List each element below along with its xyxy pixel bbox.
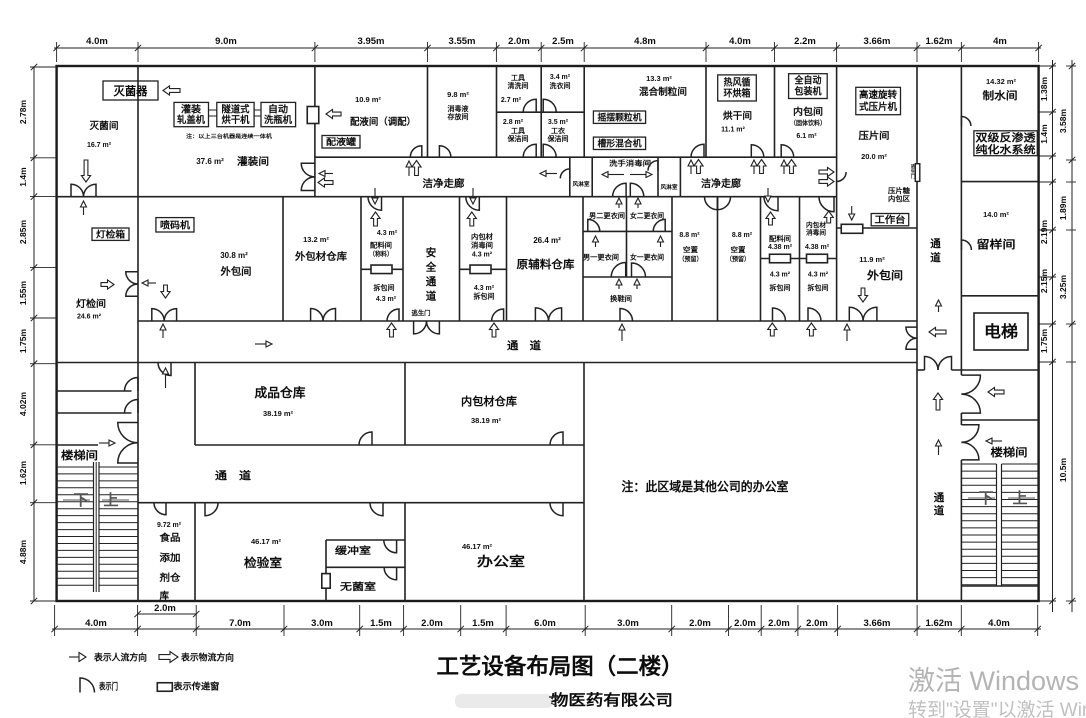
svg-text:9.8 m²: 9.8 m² xyxy=(447,90,469,99)
svg-text:3.25m: 3.25m xyxy=(1058,275,1068,300)
svg-text:包装机: 包装机 xyxy=(794,86,822,98)
svg-text:库: 库 xyxy=(159,590,170,602)
svg-text:全: 全 xyxy=(425,261,437,274)
svg-text:（预留）: （预留） xyxy=(679,254,703,263)
svg-text:3.55m: 3.55m xyxy=(449,36,476,47)
svg-text:2.5m: 2.5m xyxy=(552,36,574,47)
svg-text:热风循: 热风循 xyxy=(724,77,751,89)
svg-text:46.17 m²: 46.17 m² xyxy=(462,542,493,551)
svg-text:制水间: 制水间 xyxy=(983,89,1018,102)
svg-text:1.5m: 1.5m xyxy=(370,618,392,629)
svg-text:9.72 m²: 9.72 m² xyxy=(157,522,182,529)
svg-text:男一更衣间: 男一更衣间 xyxy=(583,253,619,262)
svg-text:洗衣间: 洗衣间 xyxy=(550,81,571,90)
svg-text:留样间: 留样间 xyxy=(977,237,1016,251)
svg-text:4.0m: 4.0m xyxy=(86,36,108,47)
svg-text:轧盖机: 轧盖机 xyxy=(177,114,205,126)
svg-text:无菌室: 无菌室 xyxy=(339,581,377,593)
svg-text:11.9 m²: 11.9 m² xyxy=(859,255,885,264)
svg-text:3.66m: 3.66m xyxy=(864,36,891,47)
svg-text:4.3 m²: 4.3 m² xyxy=(472,252,493,259)
svg-text:灯检间: 灯检间 xyxy=(76,298,106,310)
svg-text:2.78m: 2.78m xyxy=(18,100,28,125)
svg-text:电梯: 电梯 xyxy=(984,322,1018,341)
svg-text:灯检箱: 灯检箱 xyxy=(96,229,125,240)
svg-text:9.0m: 9.0m xyxy=(215,36,237,47)
svg-text:4.02m: 4.02m xyxy=(18,392,28,417)
svg-text:风淋室: 风淋室 xyxy=(661,183,678,191)
svg-text:添加: 添加 xyxy=(160,552,181,564)
svg-text:空置: 空置 xyxy=(683,245,698,254)
svg-text:4m: 4m xyxy=(993,36,1007,47)
svg-text:8.8 m²: 8.8 m² xyxy=(679,232,700,239)
svg-text:喷码机: 喷码机 xyxy=(160,220,191,232)
svg-text:道: 道 xyxy=(934,504,945,517)
svg-text:灭菌间: 灭菌间 xyxy=(88,120,118,132)
svg-text:成品仓库: 成品仓库 xyxy=(255,385,306,400)
svg-text:20.0 m²: 20.0 m² xyxy=(861,152,887,161)
svg-text:工艺设备布局图（二楼）: 工艺设备布局图（二楼） xyxy=(437,654,684,679)
svg-text:4.0m: 4.0m xyxy=(988,618,1010,629)
svg-text:激活 Windows: 激活 Windows xyxy=(908,666,1079,696)
svg-text:13.2 m²: 13.2 m² xyxy=(303,235,329,244)
svg-text:1.62m: 1.62m xyxy=(926,618,953,629)
svg-text:3.66m: 3.66m xyxy=(864,618,891,629)
svg-text:逃生门: 逃生门 xyxy=(412,308,431,317)
svg-text:注：以上三台机器是连续一体机: 注：以上三台机器是连续一体机 xyxy=(186,132,273,140)
svg-text:8.8 m²: 8.8 m² xyxy=(732,232,753,239)
svg-text:女二更衣间: 女二更衣间 xyxy=(630,211,664,220)
svg-text:安: 安 xyxy=(426,246,437,259)
svg-text:1.5m: 1.5m xyxy=(472,618,494,629)
svg-text:内包材: 内包材 xyxy=(806,220,827,229)
svg-text:（称料）: （称料） xyxy=(369,249,393,258)
svg-text:2.0m: 2.0m xyxy=(768,618,790,629)
svg-text:压片糖: 压片糖 xyxy=(888,186,910,195)
svg-text:1.62m: 1.62m xyxy=(926,36,953,47)
svg-text:注：此区域是其他公司的办公室: 注：此区域是其他公司的办公室 xyxy=(622,479,789,494)
svg-text:纯化水系统: 纯化水系统 xyxy=(976,143,1037,156)
svg-text:烘干机: 烘干机 xyxy=(222,114,250,126)
svg-text:3.0m: 3.0m xyxy=(311,618,333,629)
svg-text:4.3 m²: 4.3 m² xyxy=(808,272,829,279)
svg-text:2.15m: 2.15m xyxy=(1039,269,1049,294)
svg-text:空置: 空置 xyxy=(731,245,746,254)
svg-text:24.6 m²: 24.6 m² xyxy=(77,314,102,321)
svg-text:通: 通 xyxy=(426,276,437,288)
svg-text:16.7 m²: 16.7 m² xyxy=(87,142,112,149)
svg-text:3.58m: 3.58m xyxy=(1058,109,1068,134)
svg-text:3.5 m²: 3.5 m² xyxy=(548,119,569,126)
svg-text:46.17 m²: 46.17 m² xyxy=(251,537,282,546)
svg-text:1.4m: 1.4m xyxy=(18,167,28,187)
svg-text:通: 通 xyxy=(934,492,945,504)
svg-text:转到"设置"以激活 Windows。: 转到"设置"以激活 Windows。 xyxy=(908,699,1086,718)
svg-text:表示人流方向: 表示人流方向 xyxy=(93,652,147,663)
svg-text:保洁间: 保洁间 xyxy=(547,134,569,143)
svg-text:消毒间: 消毒间 xyxy=(471,241,493,250)
svg-text:1.62m: 1.62m xyxy=(18,461,28,486)
svg-text:1.38m: 1.38m xyxy=(1039,77,1049,102)
svg-text:2.0m: 2.0m xyxy=(806,618,828,629)
svg-text:混合制粒间: 混合制粒间 xyxy=(639,86,687,98)
svg-text:拆包间: 拆包间 xyxy=(808,283,829,292)
svg-text:高速旋转: 高速旋转 xyxy=(859,89,897,101)
svg-text:拆包间: 拆包间 xyxy=(374,283,395,292)
svg-text:道: 道 xyxy=(426,290,437,303)
svg-text:38.19 m²: 38.19 m² xyxy=(263,409,294,418)
svg-text:2.0m: 2.0m xyxy=(154,603,176,614)
svg-text:风淋室: 风淋室 xyxy=(573,180,590,188)
svg-text:工具: 工具 xyxy=(511,73,525,82)
svg-text:灌装间: 灌装间 xyxy=(237,155,269,168)
svg-text:灭菌器: 灭菌器 xyxy=(113,84,148,98)
svg-text:内包材: 内包材 xyxy=(471,232,493,241)
svg-text:2.2m: 2.2m xyxy=(794,36,816,47)
svg-text:（固体饮料）: （固体饮料） xyxy=(790,118,826,127)
svg-text:式压片机: 式压片机 xyxy=(859,101,897,113)
svg-text:内包间: 内包间 xyxy=(793,106,823,118)
svg-text:男二更衣间: 男二更衣间 xyxy=(589,211,625,220)
svg-text:10.5m: 10.5m xyxy=(1058,458,1068,483)
svg-text:1.75m: 1.75m xyxy=(1039,329,1049,354)
svg-text:拆包间: 拆包间 xyxy=(474,292,495,301)
svg-text:通 道: 通 道 xyxy=(215,469,252,482)
svg-text:剂仓: 剂仓 xyxy=(158,572,181,584)
svg-text:通: 通 xyxy=(930,238,941,250)
svg-text:10.9 m²: 10.9 m² xyxy=(355,95,381,104)
svg-text:配液间（调配）: 配液间（调配） xyxy=(350,116,416,128)
svg-text:30.8 m²: 30.8 m² xyxy=(220,251,248,260)
svg-text:14.0 m²: 14.0 m² xyxy=(983,210,1009,219)
svg-text:工作台: 工作台 xyxy=(875,214,907,226)
svg-text:4.0m: 4.0m xyxy=(85,618,107,629)
svg-text:槽形混合机: 槽形混合机 xyxy=(598,138,642,149)
svg-text:2.8 m²: 2.8 m² xyxy=(503,119,524,126)
svg-text:楼梯间: 楼梯间 xyxy=(61,448,98,462)
svg-text:烘干间: 烘干间 xyxy=(723,110,752,122)
svg-text:13.3 m²: 13.3 m² xyxy=(646,74,672,83)
svg-text:灌装: 灌装 xyxy=(181,104,202,116)
svg-text:压片间: 压片间 xyxy=(859,130,890,142)
svg-text:配液罐: 配液罐 xyxy=(326,136,356,147)
svg-text:外包间: 外包间 xyxy=(866,268,903,282)
svg-text:保洁间: 保洁间 xyxy=(507,134,529,143)
svg-text:消毒液: 消毒液 xyxy=(448,104,470,113)
svg-text:通 道: 通 道 xyxy=(507,339,542,352)
svg-text:原辅料仓库: 原辅料仓库 xyxy=(517,257,575,271)
svg-text:外包材仓库: 外包材仓库 xyxy=(294,250,347,263)
svg-text:全自动: 全自动 xyxy=(794,75,822,87)
svg-text:1.55m: 1.55m xyxy=(18,281,28,306)
svg-text:14.32 m²: 14.32 m² xyxy=(986,77,1017,86)
svg-text:1.4m: 1.4m xyxy=(1039,124,1049,144)
svg-text:食品: 食品 xyxy=(158,532,180,544)
svg-text:6.0m: 6.0m xyxy=(534,618,556,629)
svg-text:3.95m: 3.95m xyxy=(358,36,385,47)
svg-text:11.1 m²: 11.1 m² xyxy=(721,127,745,134)
svg-text:2.19m: 2.19m xyxy=(1039,220,1049,245)
svg-text:洁净走廊: 洁净走廊 xyxy=(701,177,741,190)
svg-text:女一更衣间: 女一更衣间 xyxy=(630,253,664,262)
svg-text:2.0m: 2.0m xyxy=(421,618,443,629)
svg-text:环烘箱: 环烘箱 xyxy=(724,88,751,100)
svg-text:工衣: 工衣 xyxy=(551,126,566,135)
svg-text:4.3 m²: 4.3 m² xyxy=(770,272,791,279)
svg-text:4.38 m²: 4.38 m² xyxy=(805,244,830,251)
svg-text:洗瓶机: 洗瓶机 xyxy=(264,114,292,126)
svg-text:表示传递窗: 表示传递窗 xyxy=(172,681,219,692)
svg-text:存放间: 存放间 xyxy=(448,112,469,121)
svg-text:洗手消毒间: 洗手消毒间 xyxy=(609,159,651,168)
svg-text:内包材仓库: 内包材仓库 xyxy=(461,394,517,408)
svg-text:物医药有限公司: 物医药有限公司 xyxy=(551,691,673,709)
svg-text:换鞋间: 换鞋间 xyxy=(610,294,632,303)
svg-text:缓冲室: 缓冲室 xyxy=(335,545,372,557)
svg-text:摇摆颗粒机: 摇摆颗粒机 xyxy=(598,112,642,123)
svg-text:6.1 m²: 6.1 m² xyxy=(796,133,817,140)
svg-text:3.0m: 3.0m xyxy=(617,618,639,629)
svg-text:表示物流方向: 表示物流方向 xyxy=(180,652,234,663)
svg-text:楼梯间: 楼梯间 xyxy=(991,445,1028,459)
svg-text:工具: 工具 xyxy=(511,126,525,135)
svg-text:38.19 m²: 38.19 m² xyxy=(471,416,502,425)
svg-text:2.0m: 2.0m xyxy=(689,618,711,629)
svg-text:4.8m: 4.8m xyxy=(634,36,656,47)
svg-text:（预留）: （预留） xyxy=(726,254,750,263)
svg-text:4.0m: 4.0m xyxy=(729,36,751,47)
svg-text:清洗间: 清洗间 xyxy=(508,81,529,90)
svg-text:自动: 自动 xyxy=(268,104,289,116)
svg-text:办公室: 办公室 xyxy=(477,554,525,569)
svg-text:4.88m: 4.88m xyxy=(18,540,28,565)
svg-text:配料间: 配料间 xyxy=(769,234,791,243)
svg-text:7.0m: 7.0m xyxy=(229,618,251,629)
svg-text:表示门: 表示门 xyxy=(98,681,118,692)
svg-text:拆包间: 拆包间 xyxy=(770,283,791,292)
svg-text:26.4 m²: 26.4 m² xyxy=(533,236,561,245)
svg-text:2.0m: 2.0m xyxy=(734,618,756,629)
svg-text:检验室: 检验室 xyxy=(244,555,282,570)
svg-text:2.0m: 2.0m xyxy=(508,36,530,47)
svg-text:内包区: 内包区 xyxy=(888,194,910,203)
svg-text:1.75m: 1.75m xyxy=(18,329,28,354)
svg-text:2.85m: 2.85m xyxy=(18,220,28,245)
svg-text:3.4 m²: 3.4 m² xyxy=(550,74,571,81)
svg-text:1.89m: 1.89m xyxy=(1058,196,1068,221)
svg-text:消毒间: 消毒间 xyxy=(806,228,827,237)
svg-text:双级反渗透: 双级反渗透 xyxy=(974,131,1036,144)
svg-text:4.3 m²: 4.3 m² xyxy=(376,296,397,303)
svg-text:2.7 m²: 2.7 m² xyxy=(501,97,522,104)
svg-text:37.6 m²: 37.6 m² xyxy=(196,157,224,166)
svg-text:配料间: 配料间 xyxy=(370,241,392,250)
svg-text:隧道式: 隧道式 xyxy=(222,104,250,116)
svg-text:4.38 m²: 4.38 m² xyxy=(768,244,793,251)
svg-text:道: 道 xyxy=(930,251,941,264)
svg-text:洁净走廊: 洁净走廊 xyxy=(423,177,465,190)
svg-text:外包间: 外包间 xyxy=(219,265,251,278)
svg-text:4.3 m²: 4.3 m² xyxy=(474,285,495,292)
svg-text:4.3 m²: 4.3 m² xyxy=(377,230,398,237)
